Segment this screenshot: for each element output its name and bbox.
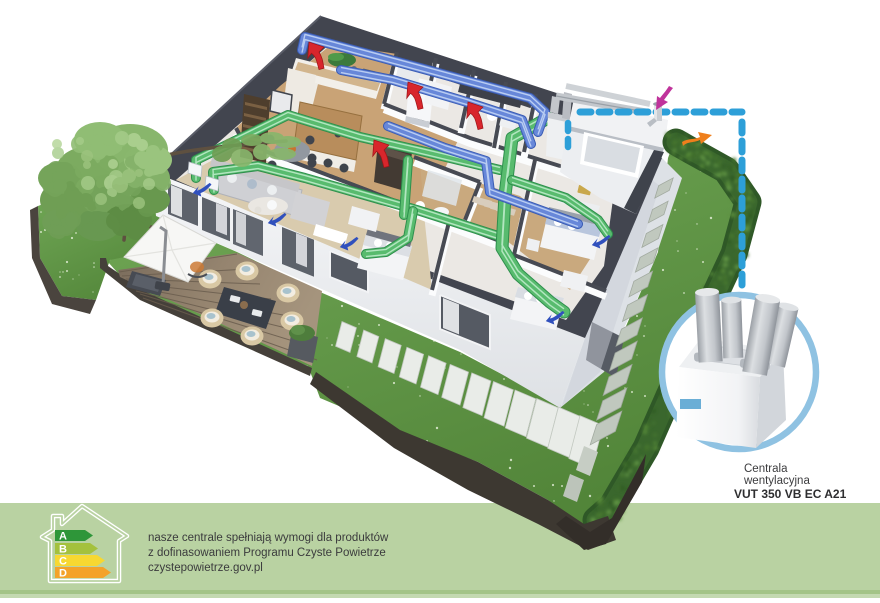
svg-text:A: A	[59, 531, 67, 543]
svg-text:VUT 350 VB EC A21: VUT 350 VB EC A21	[734, 487, 847, 501]
svg-text:nasze centrale spełniają wymog: nasze centrale spełniają wymogi dla prod…	[148, 532, 389, 544]
svg-text:z dofinasowaniem Programu Czys: z dofinasowaniem Programu Czyste Powietr…	[148, 547, 386, 559]
svg-text:Centrala: Centrala	[744, 463, 788, 475]
svg-text:wentylacyjna: wentylacyjna	[743, 475, 810, 487]
svg-text:czystepowietrze.gov.pl: czystepowietrze.gov.pl	[148, 562, 263, 574]
svg-text:D: D	[59, 568, 67, 580]
svg-text:B: B	[59, 544, 67, 556]
svg-text:C: C	[59, 556, 67, 568]
